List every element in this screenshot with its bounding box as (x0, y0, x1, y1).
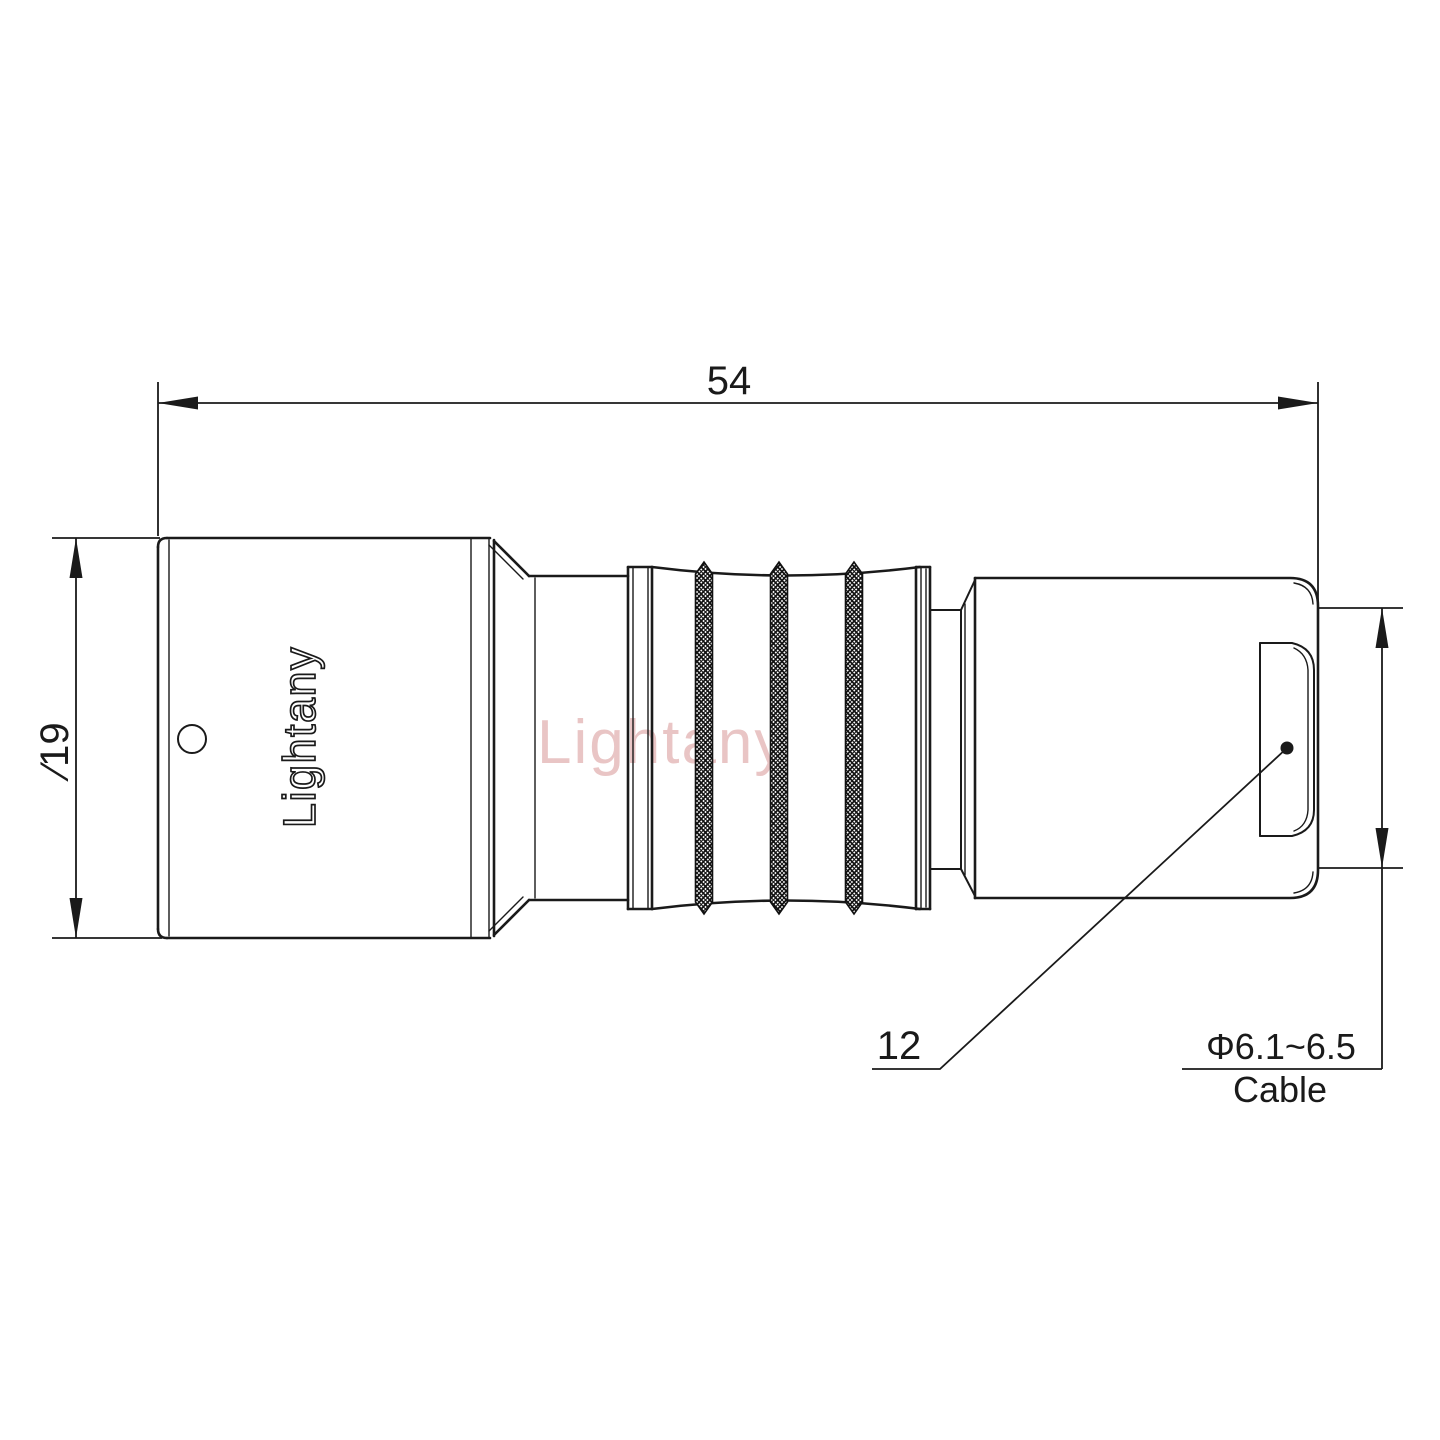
knurl-band (771, 562, 788, 914)
dim-label-overall-length: 54 (707, 359, 752, 403)
brand-engraving-text: Lightany (274, 646, 325, 828)
cable-word-label: Cable (1233, 1069, 1327, 1110)
cable-spec-label: Φ6.1~6.5 (1206, 1026, 1356, 1067)
technical-drawing-page: Lightany Lightany (0, 0, 1440, 1440)
watermark-text: Lightany (537, 708, 787, 777)
dim-label-body-diameter: ∕19 (33, 722, 77, 782)
dim-label-nut-diameter: 12 (877, 1024, 922, 1068)
connector-drawing-svg: Lightany Lightany (0, 0, 1440, 1440)
knurl-band (846, 562, 863, 914)
knurl-band (696, 562, 713, 914)
